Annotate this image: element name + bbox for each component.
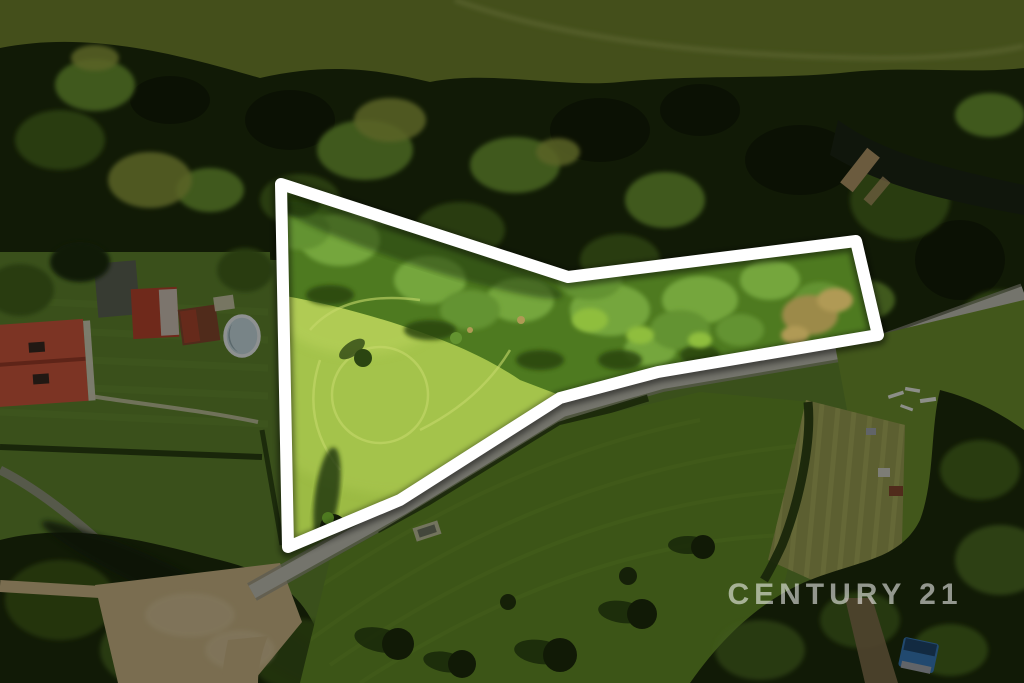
aerial-photo-stage: CENTURY 21	[0, 0, 1024, 683]
aerial-photo: CENTURY 21	[0, 0, 1024, 683]
century21-watermark: CENTURY 21	[727, 578, 962, 611]
